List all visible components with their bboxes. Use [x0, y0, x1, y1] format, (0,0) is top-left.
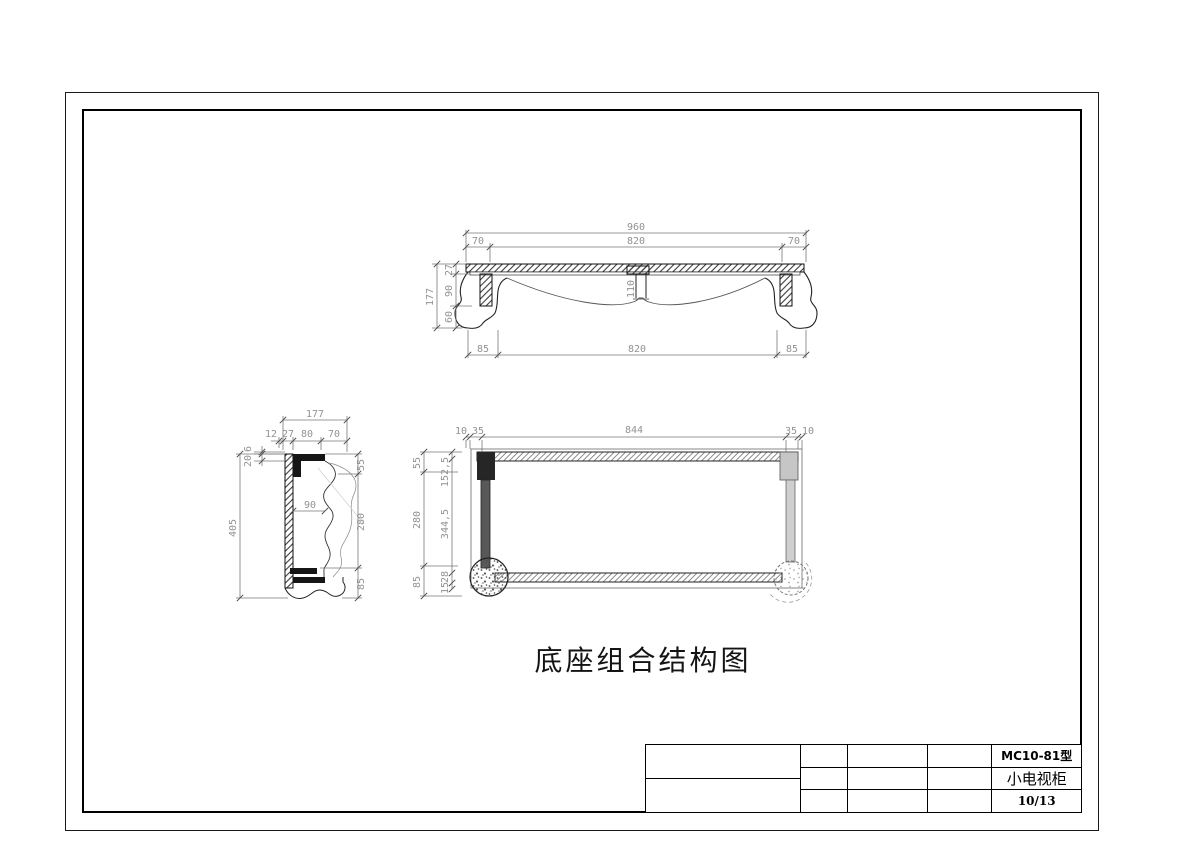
plan-top-rail	[477, 452, 798, 461]
dim-plan-edge-right: 10	[802, 426, 814, 437]
dim-plan-inner-top: 152,5	[440, 457, 451, 487]
side-bottom-rail-a	[290, 568, 317, 574]
dim-front-height-total: 177	[425, 288, 436, 306]
dim-side-top-a: 6	[243, 446, 254, 452]
title-block-empty-cell	[801, 745, 847, 767]
side-top-rail	[293, 454, 325, 461]
title-block: MC10-81型 小电视柜 10/13	[645, 744, 1082, 813]
dim-front-bottom-span: 820	[628, 344, 646, 355]
dim-plan-outer-bottom: 85	[412, 576, 423, 588]
title-block-column-3	[927, 745, 992, 812]
title-block-empty-cell	[928, 745, 992, 767]
title-block-empty-cell	[928, 767, 992, 790]
plan-left-foot	[470, 558, 508, 596]
dim-side-seg-b: 80	[301, 429, 313, 440]
page-number: 10/13	[992, 789, 1081, 812]
title-block-column-4: MC10-81型 小电视柜 10/13	[991, 745, 1081, 812]
dim-plan-inner-bottom-a: 28	[440, 571, 451, 583]
dim-plan-inner-bottom-b: 15	[440, 582, 451, 594]
dim-side-top-b: 20	[243, 455, 254, 467]
dim-plan-edge-left: 10	[455, 426, 467, 437]
dim-front-left-overhang: 70	[472, 236, 484, 247]
plan-view: 10 35 844 35 10 55 280 85 152,5 344,5 28…	[412, 425, 814, 602]
model-number: MC10-81型	[992, 745, 1081, 767]
dim-front-right-overhang: 70	[788, 236, 800, 247]
dim-plan-leg-left: 35	[472, 426, 484, 437]
plan-right-foot	[774, 561, 808, 595]
plan-right-leg-section	[780, 452, 798, 480]
plan-right-stile	[786, 480, 795, 562]
plan-left-leg-section	[477, 452, 495, 480]
front-elevation-view: 960 70 820 70 27 90 60 177 110	[425, 222, 817, 358]
dim-plan-leg-right: 35	[785, 426, 797, 437]
dim-plan-outer-mid: 280	[412, 511, 423, 529]
dim-side-right-bottom: 85	[356, 578, 367, 590]
product-name: 小电视柜	[992, 767, 1081, 790]
dim-front-center-leg: 110	[626, 280, 637, 298]
dim-front-height-mid: 90	[444, 285, 455, 297]
title-block-column-1	[800, 745, 847, 812]
dim-front-bottom-right: 85	[786, 344, 798, 355]
dim-front-total-width: 960	[627, 222, 645, 233]
plan-bottom-rail	[495, 573, 782, 582]
dim-side-depth-total: 177	[306, 409, 324, 420]
title-block-left-cell	[646, 745, 800, 812]
title-block-empty-cell	[848, 767, 927, 790]
title-block-empty-cell	[848, 789, 927, 812]
dim-side-right-mid: 280	[356, 513, 367, 531]
side-section-view: 177 12 27 80 70 6 20 405 90	[228, 409, 367, 601]
title-block-left-row-top	[646, 745, 800, 778]
dim-side-right-top: 55	[356, 459, 367, 471]
dim-plan-inner-span: 844	[625, 425, 643, 436]
view-title: 底座组合结构图	[534, 644, 751, 677]
title-block-empty-cell	[801, 789, 847, 812]
side-bottom-rail-b	[293, 577, 325, 583]
dim-front-bottom-left: 85	[477, 344, 489, 355]
dim-front-height-bottom: 60	[444, 311, 455, 323]
plan-left-stile	[481, 480, 490, 568]
dim-side-height-total: 405	[228, 519, 239, 537]
side-top-block	[293, 461, 301, 477]
drawing-sheet: 960 70 820 70 27 90 60 177 110	[0, 0, 1191, 842]
dim-side-seg-c: 70	[328, 429, 340, 440]
drawing-canvas: 960 70 820 70 27 90 60 177 110	[0, 0, 1191, 842]
title-block-column-2	[847, 745, 927, 812]
title-block-left-row-bottom	[646, 778, 800, 812]
title-block-empty-cell	[801, 767, 847, 790]
plan-outer-profile	[471, 449, 802, 588]
side-panel-section	[285, 454, 293, 588]
dim-plan-inner-mid: 344,5	[440, 509, 451, 539]
dim-front-top-width: 820	[627, 236, 645, 247]
dim-plan-outer-top: 55	[412, 457, 423, 469]
dim-side-mid-span: 90	[304, 500, 316, 511]
dim-side-front-edge: 12	[265, 429, 277, 440]
front-left-leg-tenon	[480, 274, 492, 306]
side-scalloped-edge	[324, 461, 336, 577]
dim-front-height-top: 27	[444, 264, 455, 276]
title-block-empty-cell	[928, 789, 992, 812]
title-block-empty-cell	[848, 745, 927, 767]
front-center-leg-tenon	[627, 266, 649, 274]
front-right-leg-tenon	[780, 274, 792, 306]
dim-side-seg-a: 27	[282, 429, 294, 440]
